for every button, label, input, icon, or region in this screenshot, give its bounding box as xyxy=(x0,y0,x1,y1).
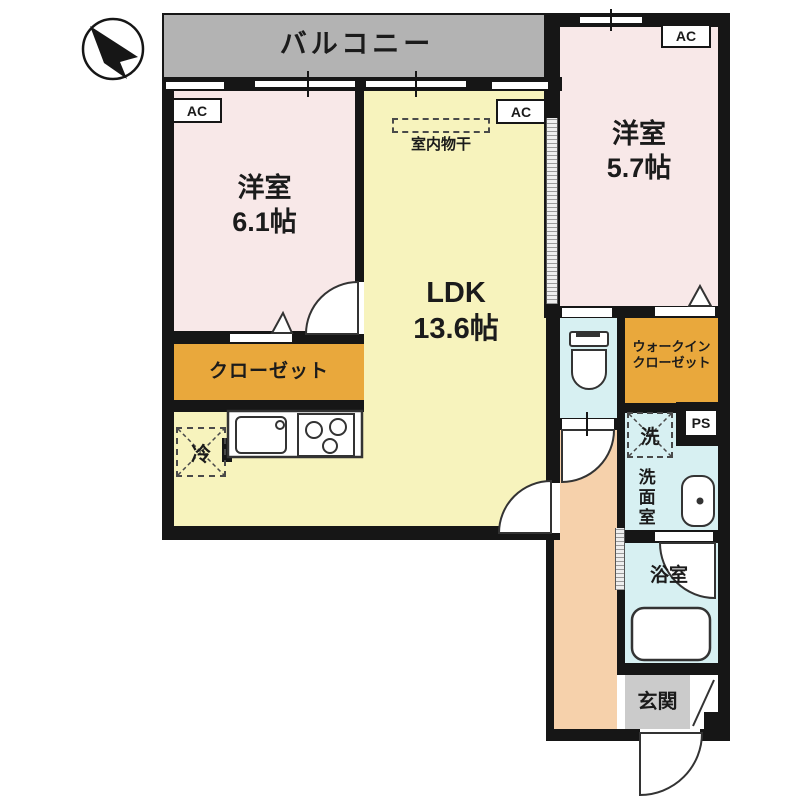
ac-label: AC xyxy=(511,104,531,120)
room-size: 13.6帖 xyxy=(413,311,498,347)
bathtub-icon xyxy=(632,608,710,660)
folding-door-wic-icon xyxy=(689,286,711,306)
closet-label: クローゼット xyxy=(174,344,364,400)
toilet-icon xyxy=(570,332,608,389)
ac-label: AC xyxy=(676,28,696,44)
washer-space-box: 洗 xyxy=(627,412,673,458)
indoor-laundry-label: 室内物干 xyxy=(374,135,508,155)
balcony-label: バルコニー xyxy=(162,13,552,77)
ac-tag-ldk: AC xyxy=(496,99,546,124)
fridge-space-box: 冷 xyxy=(176,427,226,477)
floor-plan: AC AC AC PS 冷 洗 バルコニー 洋室 6.1帖 LDK 13.6帖 … xyxy=(0,0,800,800)
washroom-label: 洗面室 xyxy=(632,458,658,538)
washbasin-icon xyxy=(682,476,714,526)
ldk-label: LDK 13.6帖 xyxy=(364,268,548,354)
door-swing-toilet xyxy=(562,430,614,482)
door-swing-ldk xyxy=(499,481,551,533)
fridge-label: 冷 xyxy=(191,438,211,467)
indoor-laundry-box xyxy=(392,118,490,133)
entrance-door-leaf xyxy=(693,680,714,726)
ps-tag: PS xyxy=(684,409,718,437)
ac-label: AC xyxy=(187,103,207,119)
door-swing-bedroom1 xyxy=(306,282,358,334)
room-name: LDK xyxy=(426,275,486,311)
bedroom1-label: 洋室 6.1帖 xyxy=(174,168,355,244)
ac-tag-bedroom1: AC xyxy=(172,98,222,123)
room-name: 洋室 xyxy=(612,118,666,152)
bedroom2-label: 洋室 5.7帖 xyxy=(560,112,718,192)
room-size: 6.1帖 xyxy=(232,206,297,240)
ps-label: PS xyxy=(692,415,711,431)
room-size: 5.7帖 xyxy=(607,152,672,186)
bathroom-label: 浴室 xyxy=(636,564,702,588)
walk-in-closet-label: ウォークイン クローゼット xyxy=(625,334,718,376)
room-name: 洋室 xyxy=(238,172,292,206)
door-swing-entrance xyxy=(640,733,702,795)
north-arrow-icon xyxy=(83,19,143,79)
faucet-icon xyxy=(276,421,284,429)
entrance-label: 玄関 xyxy=(625,675,690,729)
washer-label: 洗 xyxy=(640,422,659,449)
kitchen-counter-icon xyxy=(228,411,362,457)
ac-tag-bedroom2: AC xyxy=(661,24,711,48)
folding-door-closet-icon xyxy=(272,313,292,333)
